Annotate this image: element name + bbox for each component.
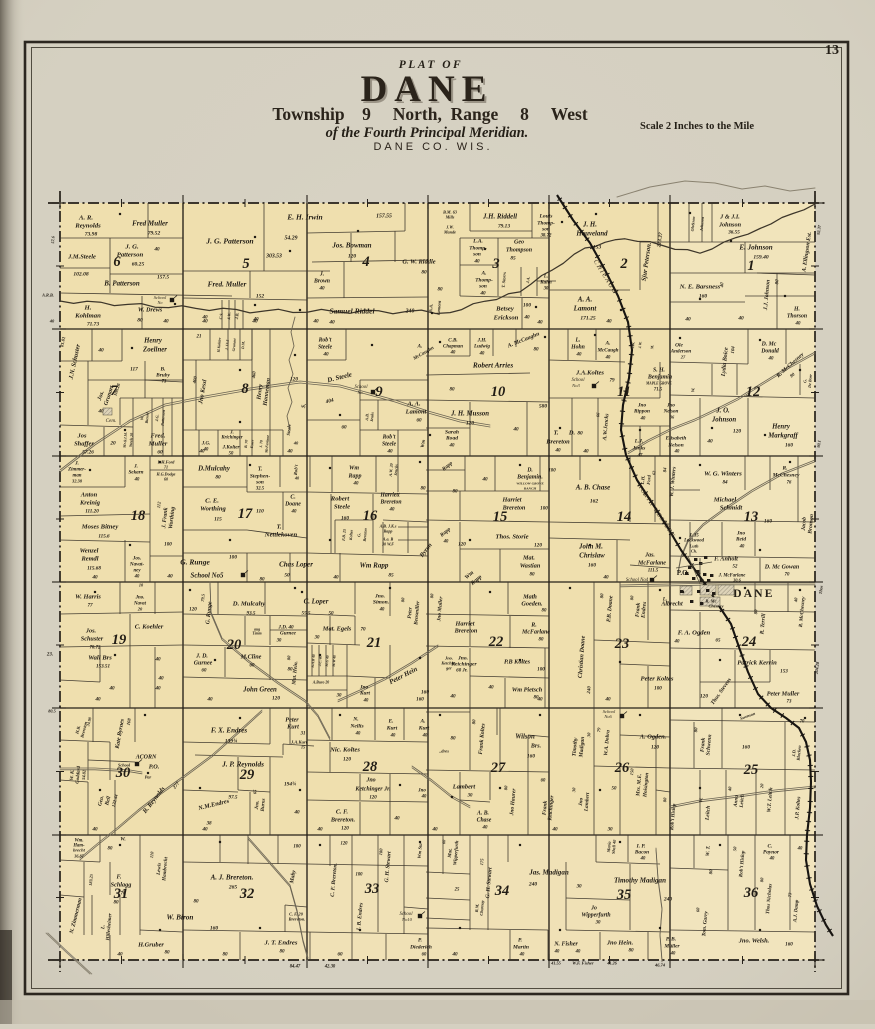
svg-text:20: 20 xyxy=(226,637,242,653)
svg-text:80: 80 xyxy=(450,735,456,741)
svg-text:Henry: Henry xyxy=(143,337,163,344)
svg-text:40: 40 xyxy=(450,350,456,355)
svg-text:J. P. Reynolds: J. P. Reynolds xyxy=(221,760,264,768)
svg-text:School No4: School No4 xyxy=(626,578,649,583)
svg-text:J.: J. xyxy=(74,460,79,466)
svg-text:Ford: Ford xyxy=(647,474,653,485)
svg-text:80: 80 xyxy=(529,571,535,577)
svg-text:40: 40 xyxy=(737,315,744,321)
svg-text:104: 104 xyxy=(731,346,737,354)
svg-text:Burns: Burns xyxy=(260,798,267,813)
svg-text:A. J. Brereton.: A. J. Brereton. xyxy=(210,873,254,881)
svg-text:153: 153 xyxy=(593,244,602,250)
svg-text:Rob't: Rob't xyxy=(382,434,396,440)
svg-text:40: 40 xyxy=(536,696,543,702)
svg-text:Geo: Geo xyxy=(514,239,524,245)
svg-text:40: 40 xyxy=(640,856,646,861)
svg-text:120: 120 xyxy=(341,825,349,831)
svg-text:80: 80 xyxy=(259,576,265,582)
svg-text:36.87: 36.87 xyxy=(73,853,84,858)
svg-text:P.: P. xyxy=(518,937,522,943)
svg-text:Rob't: Rob't xyxy=(294,464,300,476)
svg-text:40: 40 xyxy=(393,815,400,821)
svg-text:40: 40 xyxy=(519,952,525,957)
svg-text:139¾: 139¾ xyxy=(225,738,237,744)
svg-text:40: 40 xyxy=(605,355,611,360)
svg-text:No3: No3 xyxy=(571,383,580,388)
svg-text:F.: F. xyxy=(117,873,122,880)
svg-text:J.W.: J.W. xyxy=(638,341,643,348)
svg-text:Zoellner: Zoellner xyxy=(142,346,167,353)
svg-text:J.: J. xyxy=(319,271,324,277)
svg-text:J. D.: J. D. xyxy=(195,653,208,659)
svg-text:160: 160 xyxy=(341,515,349,521)
svg-text:40: 40 xyxy=(153,246,160,252)
svg-text:40: 40 xyxy=(422,733,428,738)
svg-text:76: 76 xyxy=(787,480,792,485)
svg-text:40: 40 xyxy=(487,684,494,690)
svg-text:A.: A. xyxy=(419,718,425,724)
svg-text:16: 16 xyxy=(363,508,378,524)
svg-text:54.29: 54.29 xyxy=(285,235,298,241)
svg-text:Patrick Kerrin: Patrick Kerrin xyxy=(737,659,777,666)
svg-text:26: 26 xyxy=(614,760,630,776)
svg-text:36: 36 xyxy=(669,414,675,419)
svg-text:C. F.: C. F. xyxy=(336,808,349,815)
svg-text:30: 30 xyxy=(336,693,342,698)
svg-text:30: 30 xyxy=(115,765,131,781)
svg-text:162: 162 xyxy=(590,498,599,504)
svg-text:115.68: 115.68 xyxy=(87,565,101,571)
svg-text:8: 8 xyxy=(241,381,249,397)
svg-text:W. K.: W. K. xyxy=(70,769,76,780)
svg-text:40: 40 xyxy=(551,826,558,832)
svg-text:T.: T. xyxy=(258,466,262,472)
svg-text:40: 40 xyxy=(512,426,519,432)
svg-text:3: 3 xyxy=(491,256,499,272)
svg-text:Wilson: Wilson xyxy=(515,733,535,740)
svg-text:Benjamin.: Benjamin. xyxy=(516,474,543,480)
svg-text:27: 27 xyxy=(490,760,506,776)
svg-text:Shaffer: Shaffer xyxy=(74,440,94,447)
svg-text:Lamont: Lamont xyxy=(405,408,427,415)
svg-text:40: 40 xyxy=(769,856,775,861)
svg-text:40: 40 xyxy=(198,448,205,454)
svg-text:70: 70 xyxy=(360,626,366,632)
svg-text:40: 40 xyxy=(421,794,427,799)
svg-text:40: 40 xyxy=(479,290,486,296)
svg-text:Jenks: Jenks xyxy=(369,411,375,423)
svg-text:J. G. Patterson: J. G. Patterson xyxy=(205,236,253,245)
svg-text:40: 40 xyxy=(379,607,385,612)
svg-text:36: 36 xyxy=(743,885,759,901)
svg-text:Road: Road xyxy=(445,435,458,441)
svg-text:70: 70 xyxy=(121,891,126,896)
svg-text:50: 50 xyxy=(284,572,290,578)
svg-text:Fred. Muller: Fred. Muller xyxy=(208,280,247,288)
svg-text:100: 100 xyxy=(654,685,662,691)
svg-text:Robert Arries: Robert Arries xyxy=(472,361,513,369)
svg-text:P. B.: P. B. xyxy=(666,936,676,942)
svg-text:47: 47 xyxy=(637,453,643,458)
svg-text:27: 27 xyxy=(680,354,686,359)
svg-text:Hohn: Hohn xyxy=(570,344,585,350)
svg-text:100: 100 xyxy=(548,468,556,473)
svg-text:40: 40 xyxy=(252,316,259,322)
svg-text:Louis: Louis xyxy=(539,213,553,219)
svg-text:1: 1 xyxy=(747,258,754,274)
svg-text:15: 15 xyxy=(493,509,508,525)
svg-text:B. Patterson: B. Patterson xyxy=(103,279,140,287)
svg-text:Johnson: Johnson xyxy=(711,416,737,423)
svg-text:Moses Bitney: Moses Bitney xyxy=(81,523,119,530)
svg-text:Müller: Müller xyxy=(663,943,680,949)
svg-text:120: 120 xyxy=(343,756,351,762)
svg-text:40: 40 xyxy=(720,282,726,289)
svg-text:of the Fourth Principal Merid: of the Fourth Principal Meridian. xyxy=(326,125,529,141)
svg-text:B. 70: B. 70 xyxy=(244,440,249,450)
svg-text:24: 24 xyxy=(741,634,757,650)
svg-text:Fred.: Fred. xyxy=(151,432,166,439)
svg-text:E.: E. xyxy=(387,718,393,724)
svg-text:C. Koehler: C. Koehler xyxy=(135,623,164,630)
svg-text:71: 71 xyxy=(164,464,168,469)
svg-text:Jas.: Jas. xyxy=(644,552,655,558)
svg-text:40: 40 xyxy=(706,438,713,444)
svg-text:N. Fisher: N. Fisher xyxy=(553,941,578,947)
svg-text:Chase: Chase xyxy=(477,817,492,823)
svg-text:RANCH: RANCH xyxy=(524,486,537,490)
svg-text:40: 40 xyxy=(134,574,140,579)
svg-text:Jno.: Jno. xyxy=(135,595,145,600)
svg-text:brecht: brecht xyxy=(73,847,85,852)
svg-text:80: 80 xyxy=(287,666,293,672)
svg-text:A.: A. xyxy=(480,270,486,276)
svg-text:Harriet: Harriet xyxy=(455,620,475,627)
svg-text:J.G.: J.G. xyxy=(154,414,160,422)
svg-text:85: 85 xyxy=(388,572,394,578)
svg-text:80: 80 xyxy=(215,474,221,480)
svg-text:Bruby: Bruby xyxy=(155,372,170,378)
svg-text:G. Runge: G. Runge xyxy=(180,557,210,566)
svg-text:Kreinig: Kreinig xyxy=(79,499,101,506)
svg-text:L.A.: L.A. xyxy=(472,238,483,244)
svg-text:A.: A. xyxy=(417,343,423,349)
svg-text:Kurt: Kurt xyxy=(386,725,398,731)
svg-text:40: 40 xyxy=(355,731,361,736)
svg-text:40: 40 xyxy=(554,949,560,954)
svg-text:Simon.: Simon. xyxy=(373,599,389,605)
svg-text:Johnson: Johnson xyxy=(718,221,742,228)
svg-text:A. B. Chase: A. B. Chase xyxy=(575,483,610,491)
svg-text:D. Mulcahy: D. Mulcahy xyxy=(232,600,265,607)
svg-text:32: 32 xyxy=(239,886,255,902)
svg-text:..dres: ..dres xyxy=(439,748,449,753)
svg-text:41.26: 41.26 xyxy=(606,960,617,965)
svg-text:Kuhn: Kuhn xyxy=(539,280,552,285)
svg-text:120: 120 xyxy=(189,606,197,612)
svg-text:Paynor: Paynor xyxy=(763,849,780,855)
svg-text:40: 40 xyxy=(157,675,164,681)
svg-text:F.B. 25: F.B. 25 xyxy=(341,529,347,541)
svg-text:J. McFarlane: J. McFarlane xyxy=(718,573,746,578)
svg-text:25: 25 xyxy=(743,762,759,778)
svg-text:120: 120 xyxy=(458,541,466,547)
svg-text:A.Buro 20: A.Buro 20 xyxy=(312,680,330,684)
svg-text:Wenzel: Wenzel xyxy=(80,547,99,554)
svg-text:77: 77 xyxy=(87,602,93,608)
svg-text:120: 120 xyxy=(290,376,298,382)
svg-text:12: 12 xyxy=(746,384,761,400)
svg-text:J. T. Endres: J. T. Endres xyxy=(264,939,298,946)
svg-text:90.1: 90.1 xyxy=(816,440,822,448)
svg-text:55.5: 55.5 xyxy=(302,610,311,616)
svg-text:Wipperfurth: Wipperfurth xyxy=(581,912,610,918)
svg-text:Par: Par xyxy=(145,774,152,779)
svg-text:G. W. Riddle: G. W. Riddle xyxy=(402,258,435,265)
svg-text:40: 40 xyxy=(134,477,140,482)
svg-text:100: 100 xyxy=(164,541,172,547)
svg-text:40: 40 xyxy=(166,573,173,579)
svg-text:Jenks: Jenks xyxy=(632,445,646,451)
svg-text:M.Cline: M.Cline xyxy=(240,653,262,660)
svg-text:80: 80 xyxy=(452,488,458,494)
svg-text:J.M.Steele: J.M.Steele xyxy=(67,253,96,260)
svg-text:Doane: Doane xyxy=(284,501,301,507)
svg-text:Harriet: Harriet xyxy=(502,496,522,503)
svg-text:Nic. Koltes: Nic. Koltes xyxy=(329,746,360,753)
svg-text:Kohlman: Kohlman xyxy=(74,312,101,319)
svg-text:97.5: 97.5 xyxy=(229,794,238,800)
svg-text:A. A.: A. A. xyxy=(577,295,593,303)
svg-text:Chas Loper: Chas Loper xyxy=(279,560,313,568)
svg-text:P.O.: P.O. xyxy=(677,569,690,577)
svg-text:102.08: 102.08 xyxy=(73,271,88,277)
svg-text:57.6: 57.6 xyxy=(50,235,56,244)
svg-text:40: 40 xyxy=(294,475,300,480)
svg-text:D. Mc Gowan: D. Mc Gowan xyxy=(764,564,800,570)
svg-text:Martin: Martin xyxy=(512,944,529,950)
svg-text:Ketchinger Jr.: Ketchinger Jr. xyxy=(354,786,391,792)
svg-text:110: 110 xyxy=(256,508,264,514)
svg-text:117: 117 xyxy=(130,366,138,372)
svg-text:Lamont: Lamont xyxy=(573,304,598,312)
svg-text:54.82: 54.82 xyxy=(81,769,87,780)
svg-text:Chrislaw: Chrislaw xyxy=(579,552,605,559)
svg-text:E. H. Irwin: E. H. Irwin xyxy=(286,212,322,221)
svg-text:60: 60 xyxy=(341,424,347,430)
svg-text:93.5: 93.5 xyxy=(247,610,256,616)
svg-text:Cem.: Cem. xyxy=(106,418,117,424)
svg-text:Rapp: Rapp xyxy=(384,528,393,533)
svg-text:Koltes: Koltes xyxy=(348,529,354,541)
svg-text:Jno: Jno xyxy=(365,777,375,783)
svg-text:R.: R. xyxy=(530,622,537,628)
svg-text:Mat.: Mat. xyxy=(448,848,454,859)
svg-text:A.A.: A.A. xyxy=(428,304,434,314)
svg-text:50: 50 xyxy=(328,610,334,616)
svg-text:303.53: 303.53 xyxy=(265,253,282,259)
svg-text:Math: Math xyxy=(522,593,537,600)
svg-text:Worthing: Worthing xyxy=(200,505,226,512)
svg-text:Lambert: Lambert xyxy=(452,783,476,790)
svg-text:H.Gruber: H.Gruber xyxy=(137,941,164,948)
svg-text:Wm Pietsch: Wm Pietsch xyxy=(512,686,543,693)
svg-text:Jno Hein.: Jno Hein. xyxy=(606,939,634,946)
svg-text:120: 120 xyxy=(348,253,357,259)
svg-text:W.: W. xyxy=(699,797,704,802)
svg-text:Michael: Michael xyxy=(713,496,737,503)
svg-text:F. X. Endres: F. X. Endres xyxy=(211,726,248,734)
svg-text:23: 23 xyxy=(614,636,630,652)
svg-text:T.: T. xyxy=(554,429,559,436)
svg-text:Gurnee: Gurnee xyxy=(194,660,213,666)
svg-text:120: 120 xyxy=(369,795,377,800)
svg-text:160: 160 xyxy=(421,689,429,695)
svg-text:80: 80 xyxy=(108,846,113,851)
svg-text:Houveland: Houveland xyxy=(575,230,608,237)
svg-text:92.37: 92.37 xyxy=(816,224,822,235)
svg-text:Wall Brs: Wall Brs xyxy=(88,654,112,661)
svg-text:W. Harris: W. Harris xyxy=(75,593,101,600)
svg-text:60: 60 xyxy=(337,951,343,957)
svg-text:79: 79 xyxy=(609,377,615,383)
svg-text:40: 40 xyxy=(322,351,329,357)
svg-text:Timm: Timm xyxy=(252,631,261,635)
svg-text:80: 80 xyxy=(193,898,199,904)
svg-text:son: son xyxy=(478,283,487,289)
svg-text:120: 120 xyxy=(700,693,708,699)
svg-text:E. Johnson: E. Johnson xyxy=(738,243,772,251)
svg-text:A. A.: A. A. xyxy=(406,400,421,407)
svg-text:J.W.: J.W. xyxy=(226,312,232,321)
svg-text:80: 80 xyxy=(421,269,427,275)
svg-text:H.: H. xyxy=(793,306,800,312)
svg-text:80: 80 xyxy=(539,637,544,642)
svg-text:265: 265 xyxy=(228,884,238,890)
svg-text:60: 60 xyxy=(157,449,163,455)
svg-text:son: son xyxy=(472,251,481,257)
svg-text:79.5: 79.5 xyxy=(200,593,206,602)
svg-text:Brereton: Brereton xyxy=(545,438,570,445)
svg-text:73.98: 73.98 xyxy=(85,231,98,237)
svg-text:Sekarn: Sekarn xyxy=(128,469,143,475)
svg-text:38.72: 38.72 xyxy=(539,233,552,238)
svg-text:70: 70 xyxy=(785,572,790,577)
svg-text:Goeden.: Goeden. xyxy=(521,600,543,607)
svg-text:Rob't: Rob't xyxy=(318,337,332,343)
svg-text:J. O.: J. O. xyxy=(715,407,730,414)
svg-text:40: 40 xyxy=(473,258,480,264)
svg-text:40: 40 xyxy=(293,440,299,445)
svg-text:40: 40 xyxy=(389,507,395,512)
svg-text:80: 80 xyxy=(279,948,285,954)
svg-text:120: 120 xyxy=(272,695,280,701)
svg-text:McCaugh: McCaugh xyxy=(596,347,618,353)
svg-text:157.55: 157.55 xyxy=(376,213,392,219)
svg-text:DANE CO. WIS.: DANE CO. WIS. xyxy=(373,141,492,153)
svg-text:111.5: 111.5 xyxy=(648,568,659,573)
svg-text:J.N.: J.N. xyxy=(631,341,636,348)
svg-text:36.55: 36.55 xyxy=(727,229,740,235)
svg-text:Brereton: Brereton xyxy=(454,627,478,634)
svg-text:71.73: 71.73 xyxy=(87,321,99,327)
svg-text:D.M.: D.M. xyxy=(241,341,246,350)
svg-text:23.: 23. xyxy=(46,652,53,657)
svg-text:52: 52 xyxy=(733,564,738,569)
svg-text:40: 40 xyxy=(739,544,745,549)
svg-text:2: 2 xyxy=(619,256,627,272)
svg-text:40: 40 xyxy=(318,285,325,291)
svg-text:30: 30 xyxy=(467,793,473,798)
svg-text:22: 22 xyxy=(488,634,504,650)
svg-text:30: 30 xyxy=(575,883,582,889)
svg-text:Steele: Steele xyxy=(334,503,350,510)
svg-text:Wm Rapp: Wm Rapp xyxy=(360,561,389,569)
svg-text:60: 60 xyxy=(250,663,255,668)
svg-text:80: 80 xyxy=(137,317,143,323)
svg-text:Muller: Muller xyxy=(148,440,168,447)
svg-text:40: 40 xyxy=(312,318,319,324)
svg-text:H.: H. xyxy=(84,304,92,311)
svg-text:D.Mulcahy: D.Mulcahy xyxy=(197,465,231,472)
svg-text:29: 29 xyxy=(239,767,255,783)
svg-text:40: 40 xyxy=(49,318,55,323)
svg-text:Township 9 North, Rang: Township 9 North, Range 8 West xyxy=(272,104,588,124)
svg-text:80: 80 xyxy=(449,386,455,392)
svg-text:19: 19 xyxy=(112,632,127,648)
svg-text:71.5: 71.5 xyxy=(654,387,663,392)
svg-text:5: 5 xyxy=(242,256,249,272)
svg-text:C.B.: C.B. xyxy=(448,337,457,343)
svg-text:Kurt: Kurt xyxy=(418,725,430,731)
svg-text:Schlagg: Schlagg xyxy=(111,881,132,888)
svg-text:Patterson: Patterson xyxy=(117,251,144,258)
svg-text:J. H.: J. H. xyxy=(582,221,597,228)
svg-text:9: 9 xyxy=(375,384,382,400)
svg-text:P.B Koltes: P.B Koltes xyxy=(504,658,531,665)
svg-text:240: 240 xyxy=(528,881,538,887)
svg-text:40: 40 xyxy=(575,949,581,954)
svg-text:40: 40 xyxy=(602,574,609,580)
svg-text:Peter Koltes: Peter Koltes xyxy=(641,675,674,682)
svg-text:Jos: Jos xyxy=(77,432,87,439)
svg-text:80: 80 xyxy=(542,608,547,613)
svg-text:40: 40 xyxy=(154,685,161,691)
svg-text:40: 40 xyxy=(536,319,543,325)
svg-text:L.H.: L.H. xyxy=(641,475,647,485)
svg-text:Albrecht: Albrecht xyxy=(660,601,683,607)
svg-text:40: 40 xyxy=(674,639,680,644)
svg-text:Jno. Welsh.: Jno. Welsh. xyxy=(738,937,770,944)
svg-text:J. H. Musson: J. H. Musson xyxy=(450,410,489,417)
svg-text:32.38: 32.38 xyxy=(71,478,83,483)
svg-text:157.5: 157.5 xyxy=(157,274,169,280)
svg-text:153.51: 153.51 xyxy=(96,663,111,669)
svg-text:Timothy Madigan: Timothy Madigan xyxy=(614,876,666,884)
svg-text:son: son xyxy=(255,479,264,485)
svg-text:57.26: 57.26 xyxy=(82,449,94,455)
svg-text:41.55: 41.55 xyxy=(550,960,561,965)
svg-text:40: 40 xyxy=(363,698,369,703)
svg-text:40: 40 xyxy=(91,826,98,832)
svg-text:N. E. Barsness: N. E. Barsness xyxy=(679,283,721,290)
svg-text:120: 120 xyxy=(340,841,348,846)
svg-text:L.J.: L.J. xyxy=(634,438,644,444)
svg-text:J.G.: J.G. xyxy=(201,441,210,446)
svg-text:194¾: 194¾ xyxy=(284,781,296,787)
svg-text:J.A.Koltes: J.A.Koltes xyxy=(575,369,604,376)
